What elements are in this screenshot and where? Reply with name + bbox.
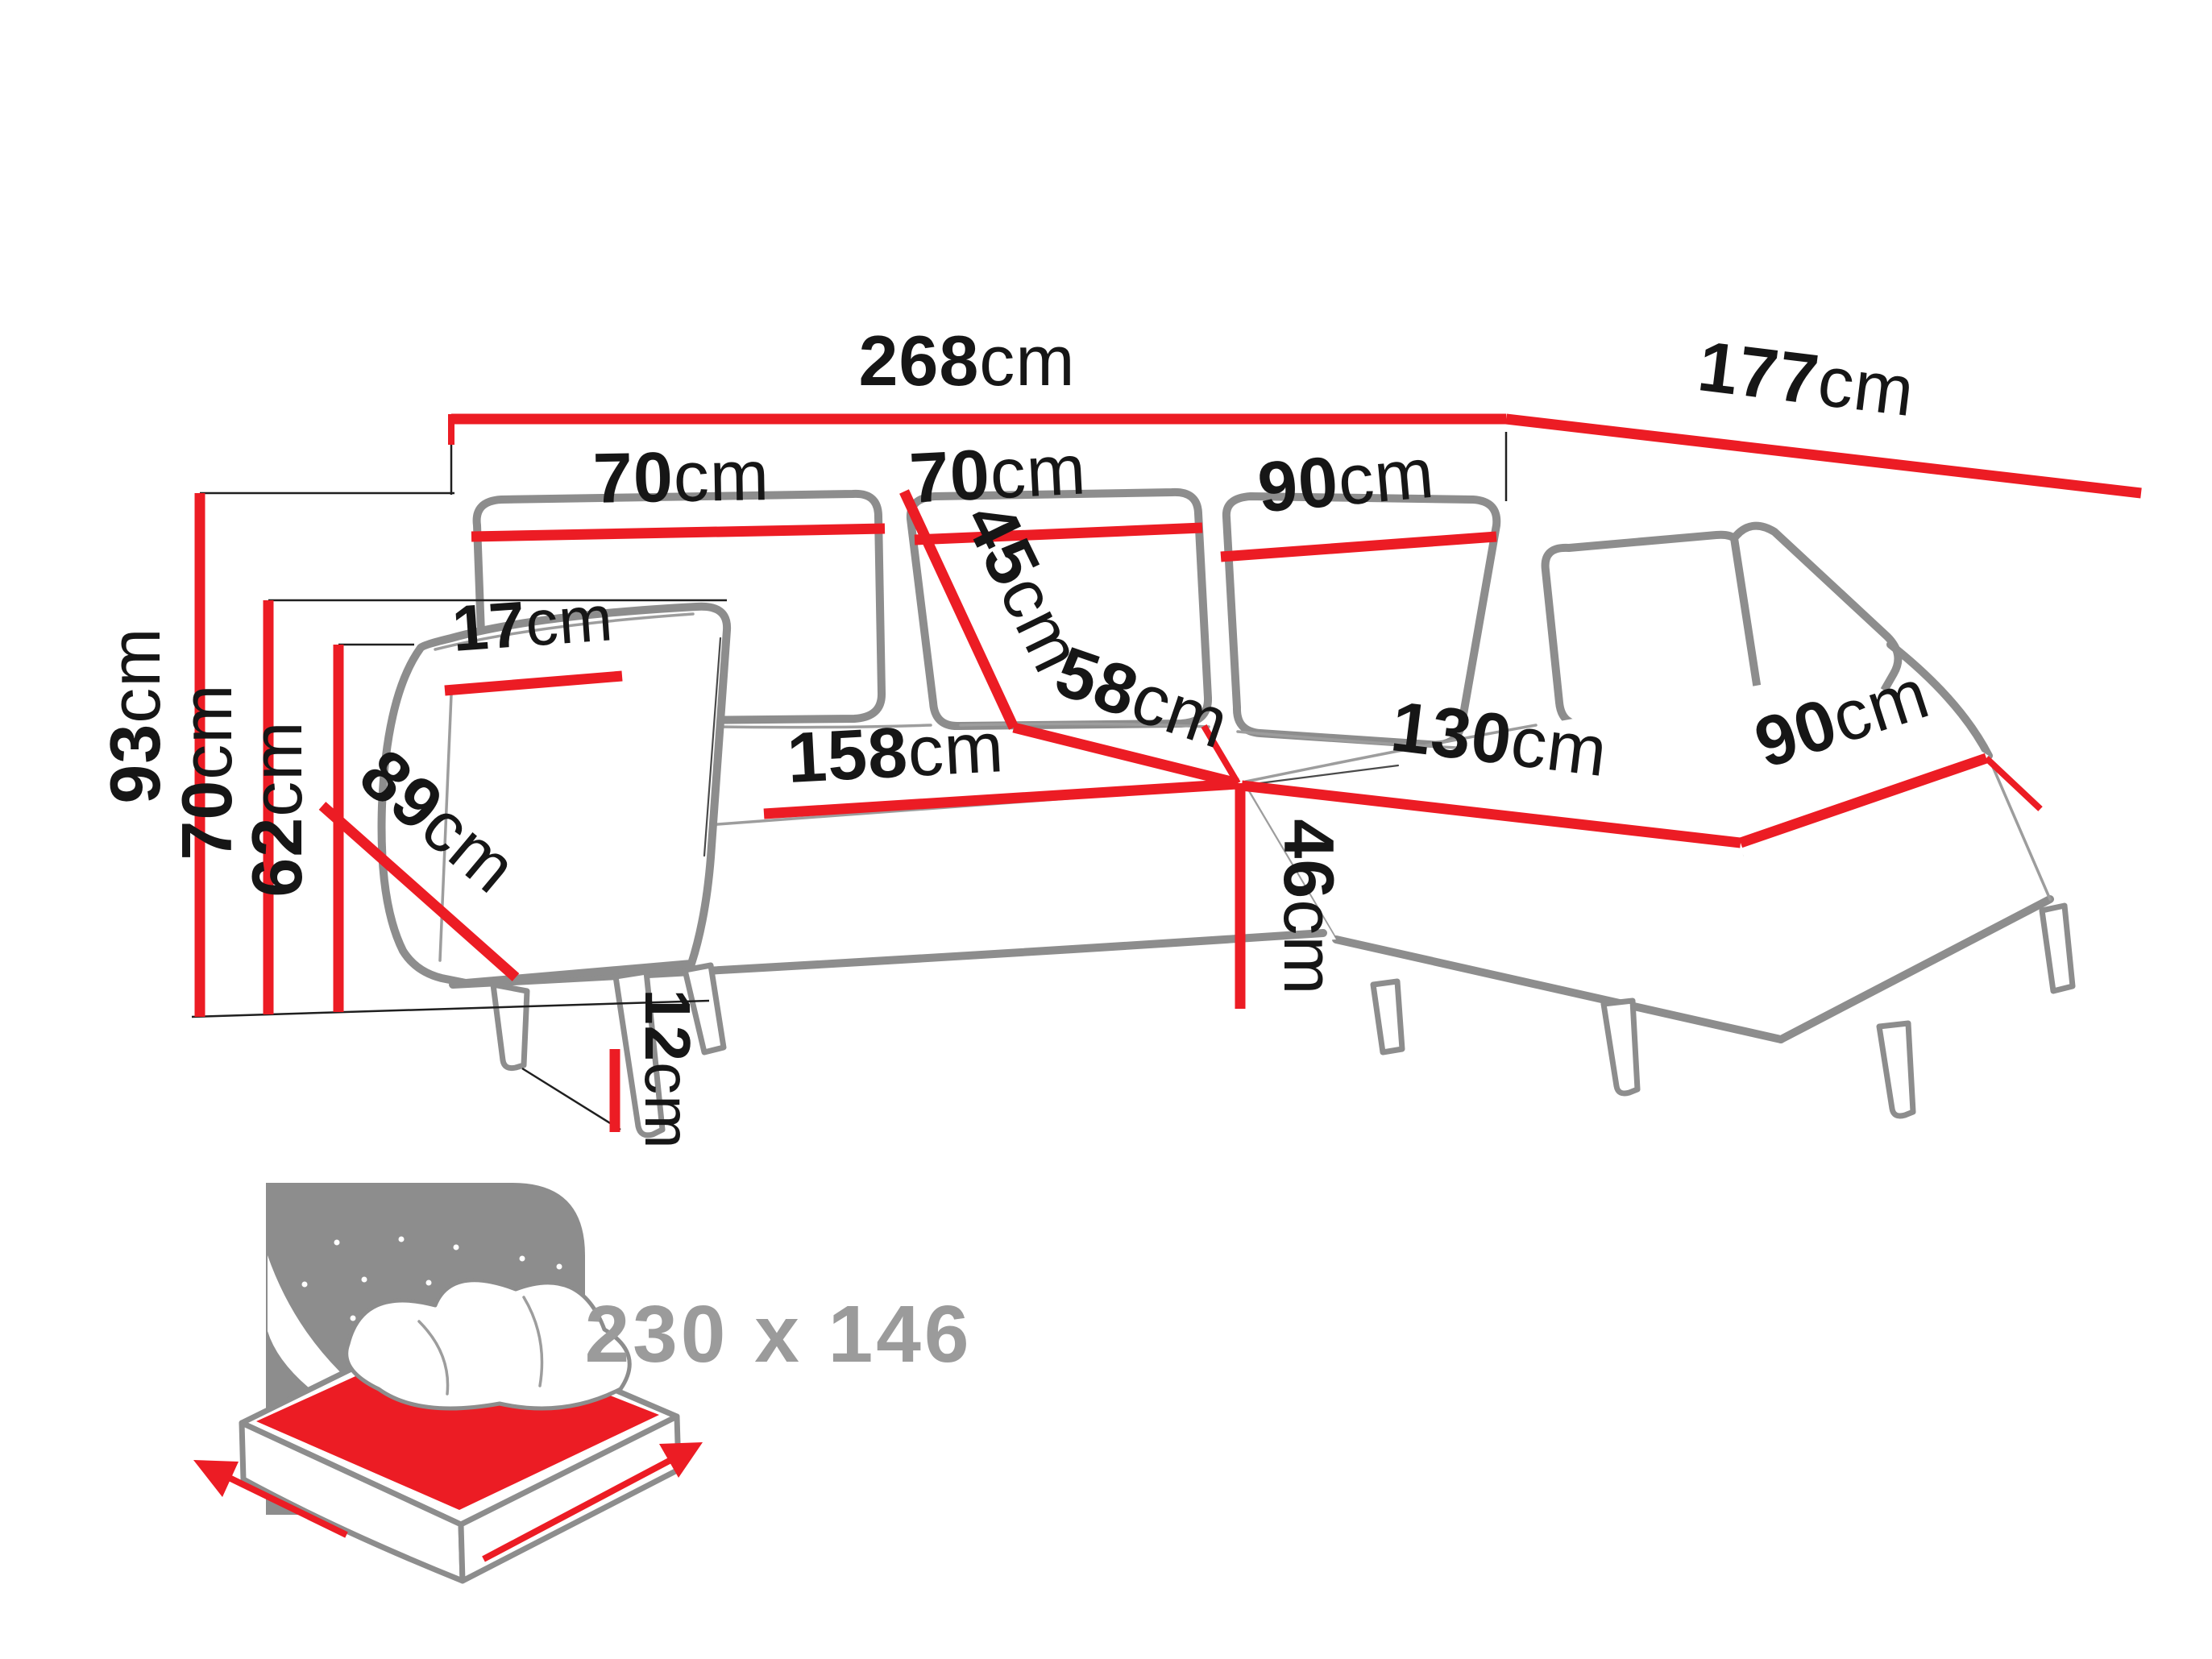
dim-label-leg-height: 12cm (632, 989, 703, 1150)
dim-label-overall-width: 268cm (858, 321, 1075, 400)
dim-label-overall-height: 93cm (95, 627, 175, 803)
dim-label-seat-edge-height: 62cm (237, 720, 317, 897)
dim-label-armrest-height: 70cm (167, 683, 247, 860)
dim-label-seat-width: 158cm (785, 707, 1006, 798)
dim-label-left-cushion-width: 70cm (592, 435, 770, 518)
dim-label-armrest-width: 17cm (450, 582, 615, 665)
dim-label-seat-height: 46cm (1269, 819, 1349, 995)
dim-label-chaise-overall-depth: 177cm (1694, 326, 1919, 431)
dim-line-chaise-overall-depth (1506, 419, 2141, 493)
sleeping-function-icon: 230 x 146 (193, 1183, 2212, 1659)
corner-sofa-dimension-diagram: 268cm 177cm 93cm 70cm 62cm 70cm 70cm 90c… (0, 0, 2212, 1659)
dim-label-right-cushion-width: 90cm (1255, 433, 1438, 528)
sleeping-area-size: 230 x 146 (585, 1289, 973, 1379)
